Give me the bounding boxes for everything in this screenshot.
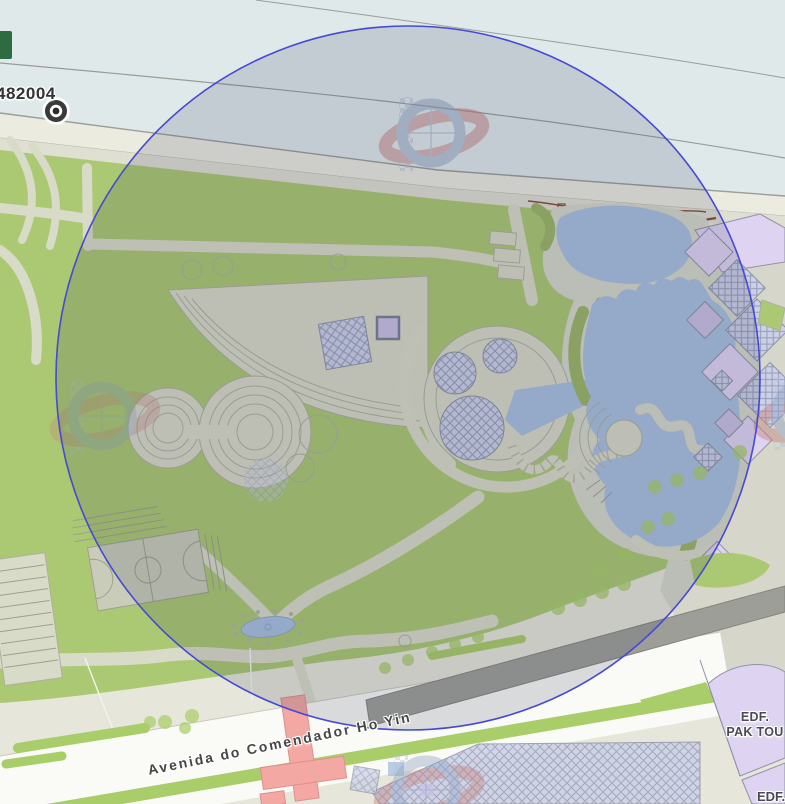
buffer-circle[interactable] <box>56 26 760 730</box>
building-label-line1: EDF. <box>703 710 785 725</box>
marker-id-label: 482004 <box>0 84 56 104</box>
map-viewport[interactable]: 482004 Avenida do Comendador Ho Yin EDF.… <box>0 0 785 804</box>
map-canvas[interactable] <box>0 0 785 804</box>
building-label-pak-tou: EDF. PAK TOU <box>703 710 785 740</box>
dark-green-block <box>0 31 12 59</box>
building-label-edf: EDF. <box>757 789 785 804</box>
building-label-line2: PAK TOU <box>703 725 785 740</box>
